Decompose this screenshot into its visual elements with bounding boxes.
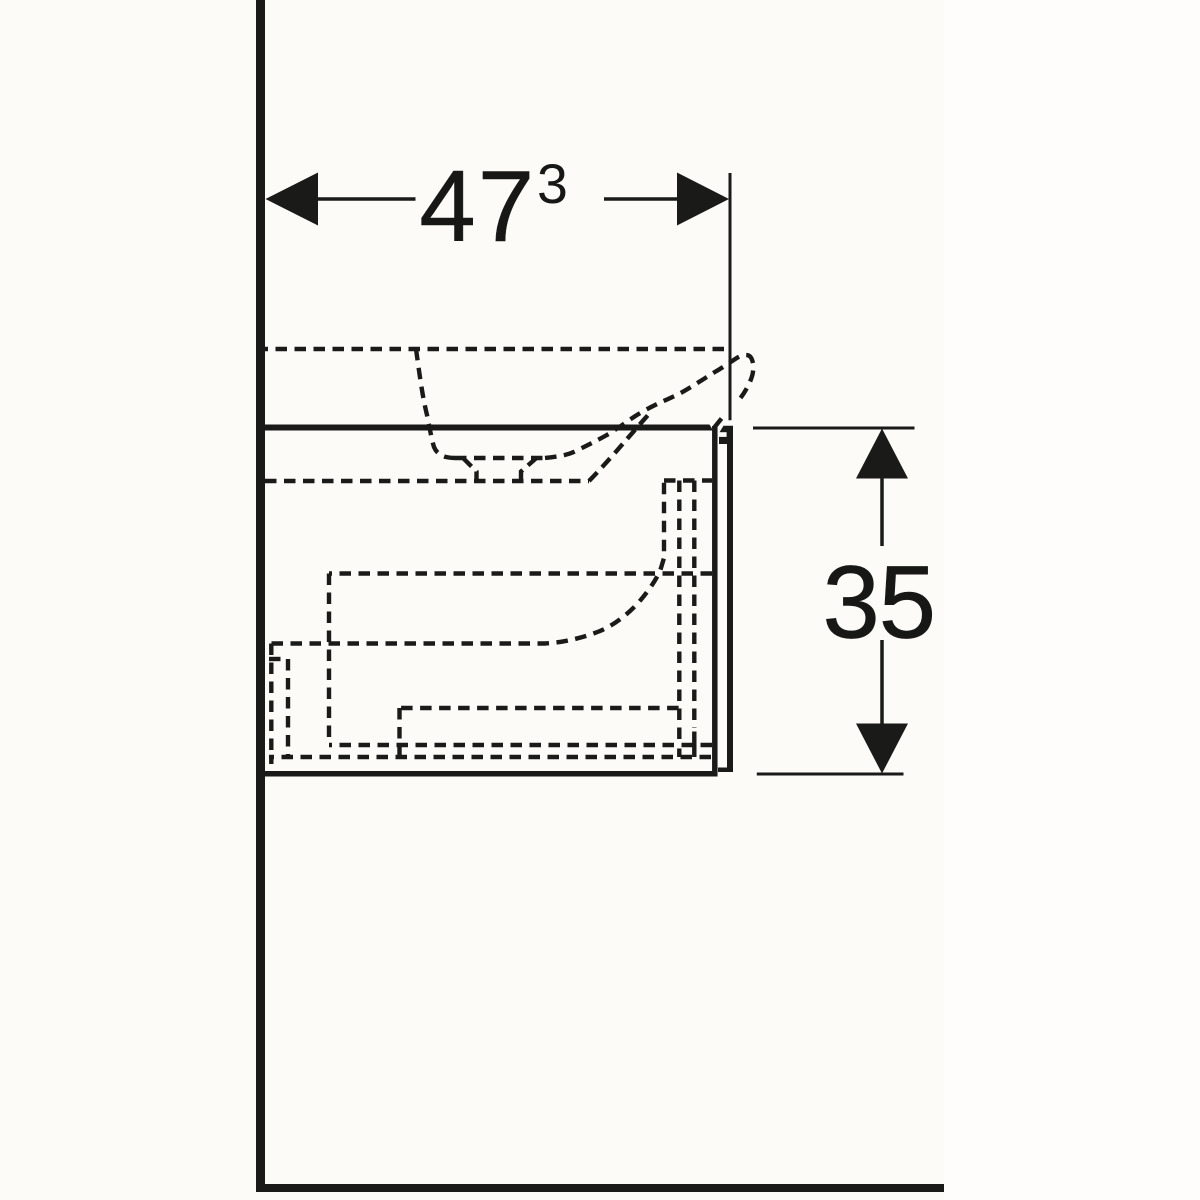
svg-text:47: 47 [419,149,536,263]
svg-text:35: 35 [823,545,936,660]
svg-text:3: 3 [537,153,568,215]
